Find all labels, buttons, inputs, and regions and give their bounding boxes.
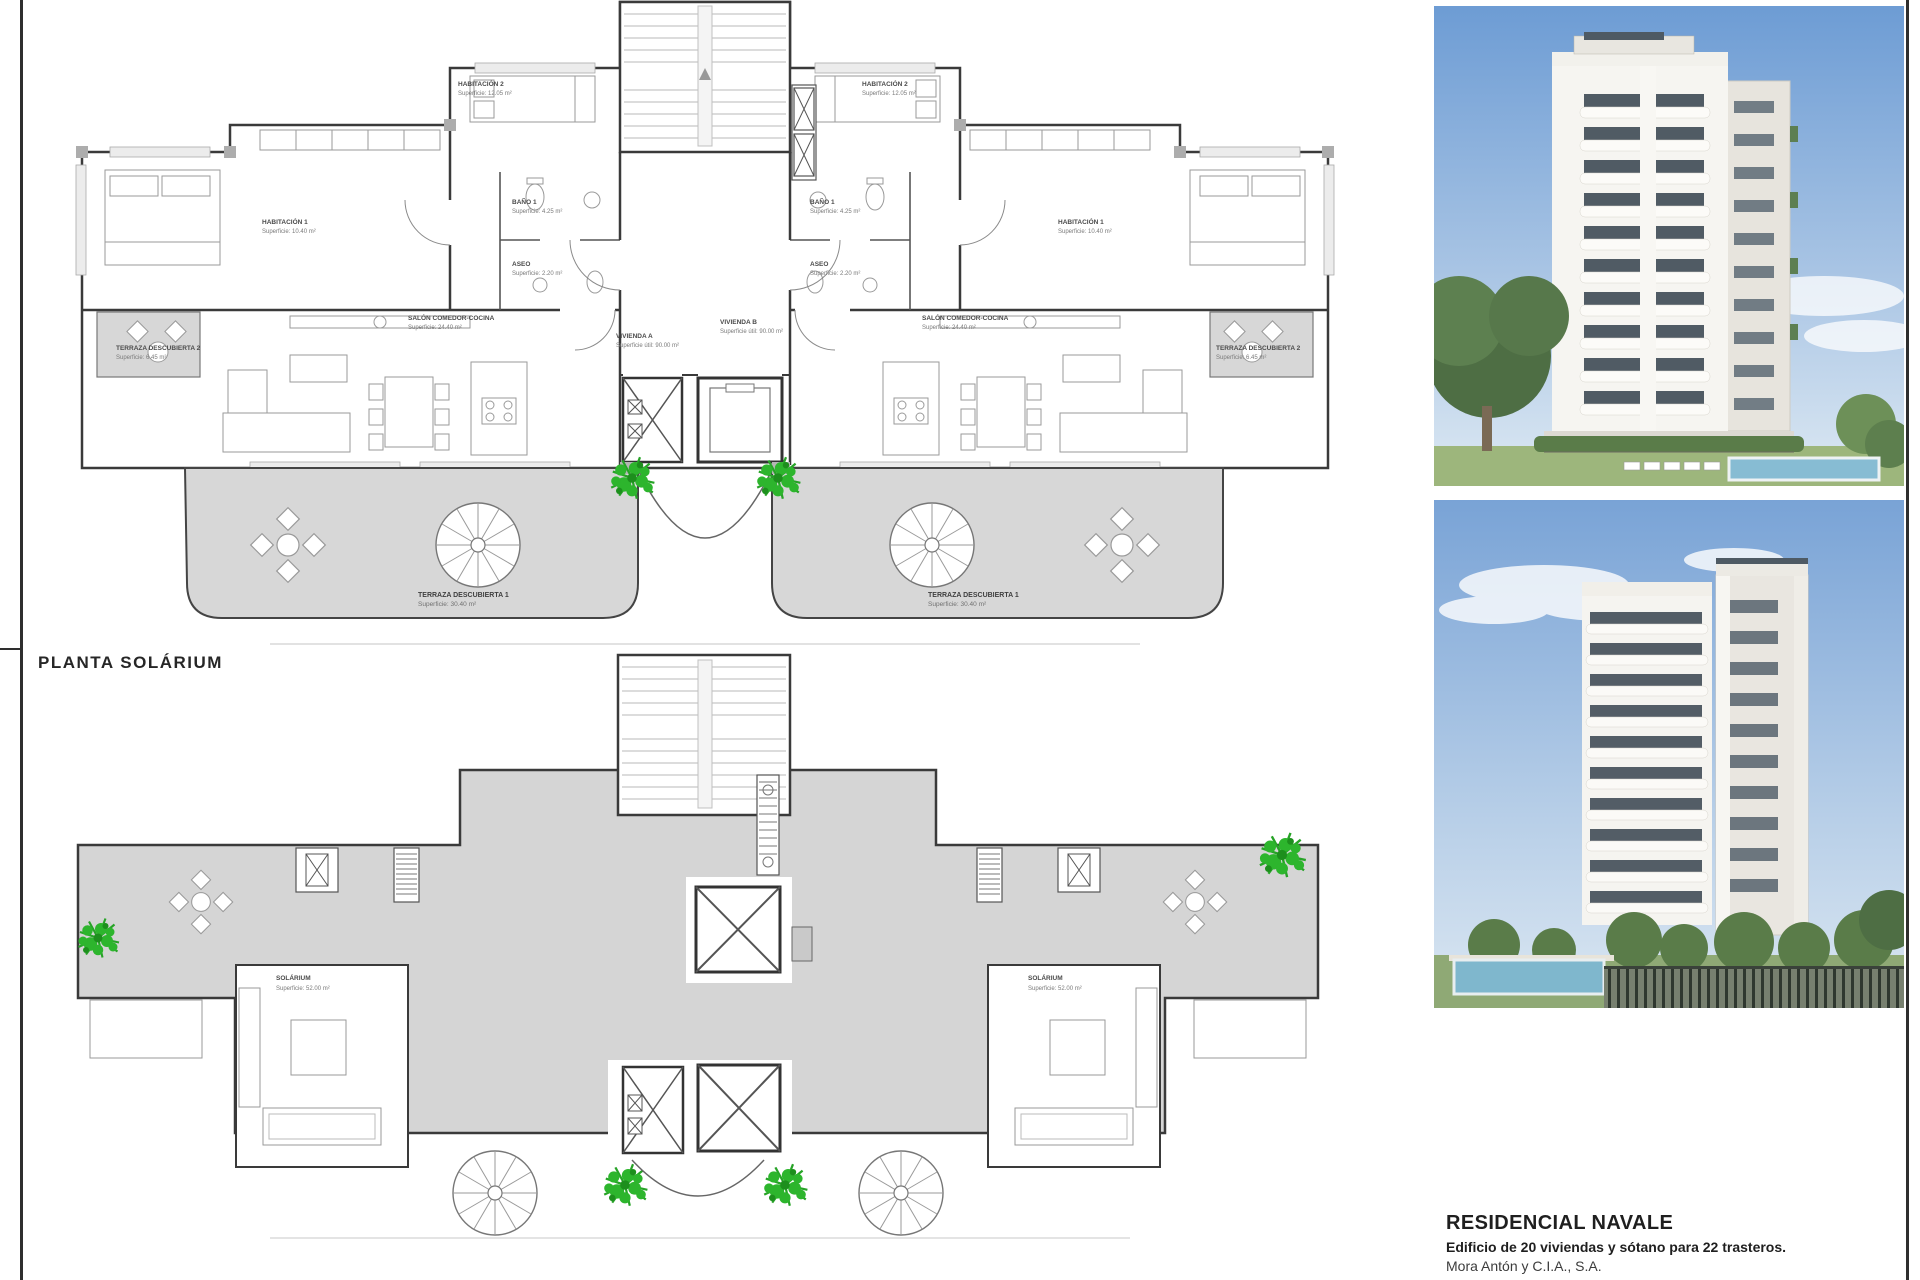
room-label-vivienda-a: VIVIENDA A	[616, 333, 653, 340]
ladder-shaft	[757, 775, 779, 875]
spiral-stair-icon	[890, 503, 974, 587]
svg-text:Superficie: 2.20 m²: Superficie: 2.20 m²	[810, 271, 860, 277]
svg-text:Superficie: 4.25 m²: Superficie: 4.25 m²	[810, 209, 860, 215]
svg-text:Superficie: 10.40 m²: Superficie: 10.40 m²	[1058, 229, 1112, 235]
room-label-bano1-right: BAÑO 1	[810, 197, 835, 206]
svg-text:Superficie: 52.00 m²: Superficie: 52.00 m²	[276, 986, 330, 992]
svg-text:Superficie: 12.05 m²: Superficie: 12.05 m²	[862, 91, 916, 97]
svg-text:Superficie: 6.45 m²: Superficie: 6.45 m²	[116, 355, 166, 361]
svg-text:Superficie útil: 90.00 m²: Superficie útil: 90.00 m²	[616, 343, 679, 349]
sun-loungers	[1624, 462, 1720, 470]
sheet-frame-tick	[0, 648, 21, 650]
project-company: Mora Antón y C.I.A., S.A.	[1446, 1258, 1786, 1274]
svg-text:Superficie: 24.40 m²: Superficie: 24.40 m²	[408, 325, 462, 331]
room-label-aseo-right: ASEO	[810, 261, 828, 268]
project-title: RESIDENCIAL NAVALE	[1446, 1212, 1786, 1235]
svg-text:Superficie útil: 90.00 m²: Superficie útil: 90.00 m²	[720, 329, 783, 335]
room-label-solarium-right: SOLÁRIUM	[1028, 973, 1063, 982]
svg-text:Superficie: 52.00 m²: Superficie: 52.00 m²	[1028, 986, 1082, 992]
room-label-salon-left: SALÓN COMEDOR-COCINA	[408, 313, 495, 322]
room-label-terraza2-right: TERRAZA DESCUBIERTA 2	[1216, 345, 1301, 352]
room-label-terraza2-left: TERRAZA DESCUBIERTA 2	[116, 345, 201, 352]
room-label-bano1-left: BAÑO 1	[512, 197, 537, 206]
room-label-salon-right: SALÓN COMEDOR-COCINA	[922, 313, 1009, 322]
solarium-room-left	[236, 965, 408, 1167]
spiral-stair-icon	[453, 1151, 537, 1235]
room-label-habitacion2-right: HABITACIÓN 2	[862, 79, 908, 88]
room-label-habitacion1-right: HABITACIÓN 1	[1058, 217, 1104, 226]
tower	[1582, 558, 1808, 935]
room-label-solarium-left: SOLÁRIUM	[276, 973, 311, 982]
plant-icon	[604, 1164, 647, 1206]
tower	[1544, 32, 1798, 449]
sheet-frame-right-line	[1906, 0, 1909, 1280]
stair-core	[620, 2, 790, 152]
pool	[1454, 960, 1604, 994]
svg-text:Superficie: 10.40 m²: Superficie: 10.40 m²	[262, 229, 316, 235]
svg-text:Superficie: 2.20 m²: Superficie: 2.20 m²	[512, 271, 562, 277]
render-photo-building-2	[1434, 500, 1904, 1008]
roof-terraces	[185, 457, 1223, 644]
room-label-vivienda-b: VIVIENDA B	[720, 319, 757, 326]
render-photo-building-1	[1434, 6, 1904, 486]
lower-shafts	[608, 1060, 792, 1160]
room-label-habitacion2-left: HABITACIÓN 2	[458, 79, 504, 88]
room-label-terraza1-left: TERRAZA DESCUBIERTA 1	[418, 592, 509, 599]
solarium-room-right	[988, 965, 1160, 1167]
service-shaft	[792, 85, 816, 180]
title-block: RESIDENCIAL NAVALE Edificio de 20 vivien…	[1446, 1212, 1786, 1274]
canopy-arc	[632, 1160, 764, 1196]
floor-plan-solarium: SOLÁRIUM Superficie: 52.00 m² SOLÁRIUM S…	[20, 640, 1420, 1280]
svg-text:Superficie: 6.45 m²: Superficie: 6.45 m²	[1216, 355, 1266, 361]
svg-text:Superficie: 30.40 m²: Superficie: 30.40 m²	[418, 601, 477, 608]
plan-sheet: PLANTA SOLÁRIUM	[0, 0, 1920, 1280]
svg-text:Superficie: 12.05 m²: Superficie: 12.05 m²	[458, 91, 512, 97]
plant-icon	[764, 1164, 807, 1206]
spiral-stair-icon	[436, 503, 520, 587]
pool	[1729, 458, 1879, 480]
parapet-step-left	[90, 1000, 202, 1058]
room-label-terraza1-right: TERRAZA DESCUBIERTA 1	[928, 592, 1019, 599]
spiral-stair-icon	[859, 1151, 943, 1235]
project-subtitle: Edificio de 20 viviendas y sótano para 2…	[1446, 1239, 1786, 1255]
room-label-habitacion1-left: HABITACIÓN 1	[262, 217, 308, 226]
room-label-aseo-left: ASEO	[512, 261, 530, 268]
svg-text:Superficie: 4.25 m²: Superficie: 4.25 m²	[512, 209, 562, 215]
svg-text:Superficie: 24.40 m²: Superficie: 24.40 m²	[922, 325, 976, 331]
svg-text:Superficie: 30.40 m²: Superficie: 30.40 m²	[928, 601, 987, 608]
floor-plan-penthouse: HABITACIÓN 1 Superficie: 10.40 m² HABITA…	[20, 0, 1420, 650]
fence	[1604, 966, 1904, 1008]
parapet-step-right	[1194, 1000, 1306, 1058]
